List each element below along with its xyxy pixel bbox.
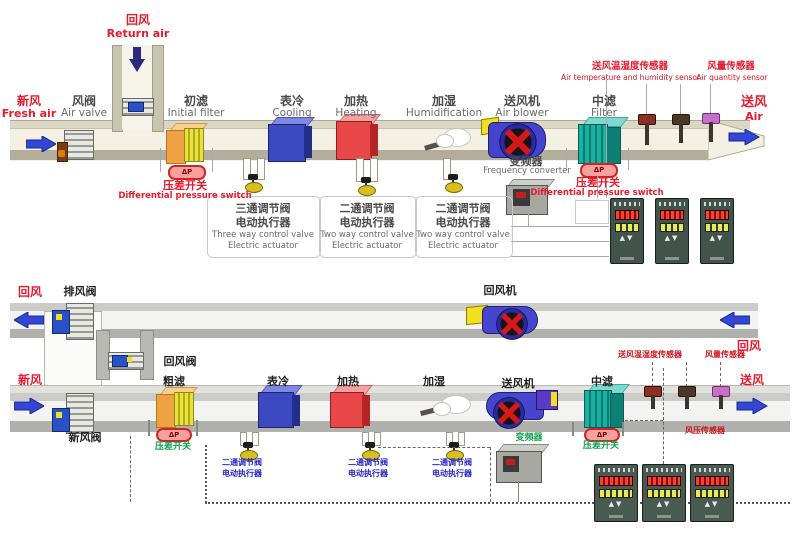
exhaust-arrow-icon	[14, 312, 44, 328]
bus-left-vertical	[205, 445, 208, 503]
supply-fan-outlet-face	[551, 392, 557, 406]
ps1-bracket-left	[160, 148, 161, 172]
ps1-label-zh: 压差开关	[153, 180, 217, 192]
bot-heating-front	[330, 392, 364, 428]
air-blower-label-zh: 送风机	[494, 95, 550, 108]
exhaust-valve-knob	[56, 314, 62, 320]
two-way1-label-en2: Electric actuator	[319, 242, 415, 251]
bot-heating-side	[362, 395, 370, 426]
steam-cloud-2	[436, 134, 454, 148]
controller-panel[interactable]: ▲▼	[700, 198, 734, 264]
controller-panel[interactable]: ▲▼	[594, 464, 638, 522]
return-fan-icon	[495, 307, 529, 341]
ctrl-wire-2	[511, 241, 609, 242]
bot-sensor2-stem	[685, 395, 689, 409]
initial-filter-front	[166, 130, 186, 164]
air-valve-knob	[58, 150, 65, 157]
bot-ps1-bracket-l	[148, 420, 150, 436]
two-way2-label-zh1: 二通调节阀	[415, 203, 511, 215]
mid-filter-front	[578, 124, 608, 164]
heating-coil-side	[370, 124, 378, 156]
bot-valve-1-icon	[240, 442, 256, 459]
controller-panel[interactable]: ▲▼	[610, 198, 644, 264]
bot-return-duct-top	[10, 303, 758, 311]
cooling-label-zh: 表冷	[268, 95, 316, 108]
two-way-valve-1-icon	[357, 177, 375, 195]
two-way2-label-en1: Two way control valve	[411, 231, 515, 240]
air-valve-label-zh: 风阀	[60, 95, 108, 108]
bot-valve2-label-1: 二通调节阀	[340, 459, 396, 467]
bot-valve-3-icon	[446, 442, 462, 459]
fresh-air-label-en: Fresh air	[0, 108, 58, 120]
ctrl-wire-3	[511, 256, 609, 257]
three-way-label-zh2: 电动执行器	[209, 217, 317, 229]
fresh-air-valve-damper	[66, 393, 94, 434]
bot-mid-filter-label: 中滤	[580, 376, 624, 388]
bot-valve1-label-2: 电动执行器	[214, 470, 270, 478]
return-air-label-en: Return air	[102, 28, 174, 40]
two-way2-label-en2: Electric actuator	[415, 242, 511, 251]
bot-sensor3-stem	[719, 395, 723, 409]
ps2-label-en: Differential pressure switch	[522, 189, 672, 198]
bot-air-quantity-sensor-label: 风量传感器	[698, 351, 752, 359]
cooling-label-en: Cooling	[266, 108, 318, 119]
bot-valve3-label-2: 电动执行器	[424, 470, 480, 478]
bot-supply-duct-top	[10, 393, 790, 401]
bot-supply-duct-bottom	[10, 421, 790, 432]
valve2-link	[378, 447, 490, 449]
heating-label-en: Heating	[328, 108, 384, 119]
humidification-label-en: Humidification	[398, 108, 490, 119]
cooling-coil-side	[304, 126, 312, 158]
bot-return-duct-front	[10, 311, 758, 329]
mid-filter-side	[606, 127, 621, 164]
bot-ps2-bracket-l	[572, 422, 574, 436]
two-way-valve-2-icon	[444, 174, 462, 192]
ctrl-junction-box	[575, 200, 609, 224]
sensor-bus-vertical	[663, 368, 665, 464]
two-way1-label-zh2: 电动执行器	[319, 217, 415, 229]
bot-sensor1-lead	[652, 362, 654, 387]
bot-valve1-label-1: 二通调节阀	[214, 459, 270, 467]
three-way-label-zh1: 三通调节阀	[209, 203, 317, 215]
temp-humidity-sensor-stem	[645, 123, 649, 145]
hvac-ahu-diagram: ΔP ΔP ▲▼ ▲▼ ▲▼ 新风 Fresh air 风阀 Air valv	[0, 0, 800, 539]
return-damper-actuator	[128, 102, 144, 112]
cooling-coil-front	[268, 124, 306, 162]
ps1-bracket-right	[212, 148, 213, 172]
temp-humidity-sensor-label-en: Air temperature and humidity sensor	[558, 74, 703, 82]
coarse-filter-pleats	[174, 392, 194, 426]
bot-pressure-switch-2: ΔP	[584, 428, 620, 442]
fresh-air-valve-knob	[56, 412, 62, 418]
initial-filter-label-zh: 初滤	[168, 95, 224, 108]
ps2-bracket-right	[628, 148, 629, 170]
bot-freq-label: 变频器	[506, 434, 552, 443]
air-valve-damper	[64, 130, 94, 160]
freq-converter-label-en: Frequency converter	[482, 167, 572, 176]
initial-filter-pleats	[184, 128, 204, 162]
return-air-label-zh: 回风	[110, 14, 166, 27]
supply-fan-label: 送风机	[490, 378, 546, 390]
exhaust-valve-damper	[66, 303, 94, 340]
three-way-label-en1: Three way control valve	[209, 231, 317, 240]
two-way1-label-zh1: 二通调节阀	[319, 203, 415, 215]
supply-air-label-en: Air	[740, 111, 768, 123]
bot-ps1-bracket-r	[196, 420, 198, 436]
bot-valve3-label-1: 二通调节阀	[424, 459, 480, 467]
sensor2-stem	[679, 123, 683, 143]
bot-return-duct-bottom	[10, 329, 758, 338]
ps2-label-zh: 压差开关	[566, 177, 630, 189]
controller-panel[interactable]: ▲▼	[642, 464, 686, 522]
three-way-label-en2: Electric actuator	[209, 242, 317, 251]
return-arrow-right-icon	[720, 312, 750, 328]
bot-valve-2-icon	[362, 442, 378, 459]
bot-sensor3-lead	[720, 362, 722, 387]
bot-pressure-switch-1: ΔP	[156, 428, 192, 442]
bot-mid-filter-front	[584, 390, 612, 428]
air-quantity-sensor-label-en: Air quantity sensor	[692, 74, 772, 82]
fresh-air-arrow-bot-icon	[14, 398, 44, 414]
supply-fan-icon	[492, 396, 526, 430]
sensor2-lead	[680, 84, 681, 114]
return-air-valve-knob	[127, 357, 132, 362]
return-air-valve-actuator	[112, 355, 128, 367]
bot-sensor2-lead	[686, 362, 688, 387]
exhaust-valve-label: 排风阀	[54, 286, 106, 298]
bot-supply-air-label: 送风	[732, 374, 772, 387]
three-way-valve-icon	[244, 174, 262, 192]
bot-supply-duct-front	[10, 401, 790, 421]
supply-air-label-zh: 送风	[734, 96, 774, 110]
supply-air-arrow-icon	[727, 129, 761, 145]
mid-filter-label-en: Filter	[580, 108, 628, 119]
pressure-switch-1: ΔP	[168, 165, 206, 180]
mid-filter-label-zh: 中滤	[580, 95, 628, 108]
bot-cooling-label: 表冷	[256, 376, 300, 388]
bot-valve2-label-2: 电动执行器	[340, 470, 396, 478]
initial-filter-label-en: Initial filter	[160, 108, 232, 119]
air-valve-label-en: Air valve	[56, 108, 112, 119]
bot-ps2-label: 压差开关	[570, 442, 632, 451]
ctrl-wire-1	[511, 226, 609, 227]
heating-label-zh: 加热	[332, 95, 380, 108]
two-way2-label-zh2: 电动执行器	[415, 217, 511, 229]
sensor1-lead	[646, 84, 647, 114]
damper-bus-vertical	[130, 436, 132, 502]
bot-cooling-side	[292, 395, 300, 426]
fresh-air-arrow-icon	[26, 136, 56, 152]
controller-panel[interactable]: ▲▼	[655, 198, 689, 264]
supply-arrow-bot-icon	[736, 398, 768, 414]
air-blower-label-en: Air blower	[494, 108, 550, 119]
air-quantity-sensor-label-zh: 风量传感器	[698, 62, 764, 72]
fresh-air-valve-label: 新风阀	[58, 432, 112, 444]
heating-coil-front	[336, 121, 372, 160]
bot-freq-display	[506, 459, 515, 465]
sensor3-lead	[710, 84, 711, 114]
bot-fresh-air-label: 新风	[12, 374, 48, 387]
coarse-filter-label: 粗滤	[152, 376, 196, 388]
ctrl-wire-v	[528, 213, 529, 226]
return-fan-label: 回风机	[470, 285, 530, 297]
controller-panel[interactable]: ▲▼	[690, 464, 734, 522]
valve-link-vertical	[490, 447, 492, 502]
humidification-label-zh: 加湿	[420, 95, 468, 108]
return-valve-label: 回风阀	[154, 356, 206, 368]
bot-sensor1-stem	[651, 395, 655, 409]
bot-humidification-label: 加湿	[412, 376, 456, 388]
bot-ps2-bracket-r	[622, 422, 624, 436]
air-pressure-sensor-label: 风压传感器	[676, 427, 734, 435]
freq-bus-wire	[518, 481, 519, 502]
air-quantity-sensor-stem	[709, 122, 713, 142]
temp-humidity-sensor-label-zh: 送风温湿度传感器	[580, 62, 680, 72]
ps2-link	[620, 420, 663, 422]
bot-return-air-label: 回风	[12, 286, 48, 299]
bot-steam-cloud-2	[433, 402, 451, 416]
bot-ps1-label: 压差开关	[142, 443, 204, 452]
fresh-air-label-zh: 新风	[4, 95, 54, 108]
bot-temp-humidity-sensor-label: 送风温湿度传感器	[606, 351, 694, 359]
ps1-label-en: Differential pressure switch	[110, 192, 260, 201]
bot-heating-label: 加热	[326, 376, 370, 388]
coarse-filter-front	[156, 394, 176, 428]
return-air-arrow-icon	[127, 47, 147, 73]
bot-cooling-front	[258, 392, 294, 428]
two-way1-label-en1: Two way control valve	[315, 231, 419, 240]
